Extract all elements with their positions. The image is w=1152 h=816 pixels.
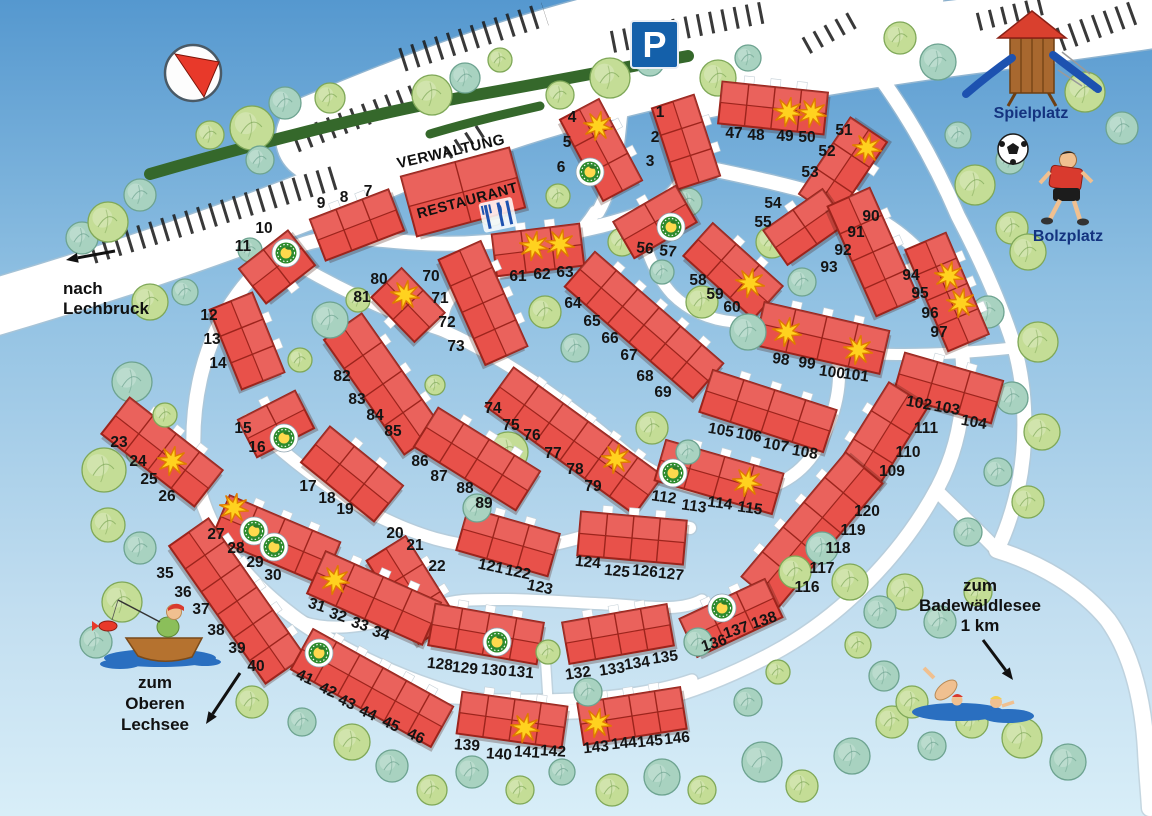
house-number-54: 54 [764, 195, 782, 212]
house-number-93: 93 [820, 259, 838, 276]
house-number-26: 26 [158, 488, 176, 505]
house-number-74: 74 [484, 400, 502, 417]
tree-icon [1106, 112, 1138, 144]
resort-badge-icon [270, 424, 298, 452]
tree-icon [1050, 744, 1086, 780]
tree-icon [456, 756, 488, 788]
house-number-6: 6 [557, 159, 566, 176]
zum-badewaeldlesee-label: Badewäldlesee [919, 596, 1041, 615]
tree-icon [864, 596, 896, 628]
tree-icon [334, 724, 370, 760]
house-number-85: 85 [384, 423, 402, 440]
house-number-114: 114 [706, 493, 734, 513]
tree-icon [82, 448, 126, 492]
tree-icon [196, 121, 224, 149]
tree-icon [730, 314, 766, 350]
house-number-40: 40 [247, 658, 264, 675]
house-number-128: 128 [426, 655, 454, 675]
house-number-18: 18 [318, 490, 336, 507]
house-number-119: 119 [840, 522, 865, 539]
house-number-146: 146 [663, 729, 691, 749]
house-number-69: 69 [654, 384, 672, 401]
house-number-57: 57 [658, 242, 677, 261]
tree-icon [536, 640, 560, 664]
house-number-142: 142 [539, 742, 566, 761]
zum-oberen-lechsee-label: Lechsee [121, 715, 189, 734]
resort-badge-icon [272, 239, 300, 267]
house-number-7: 7 [364, 183, 373, 200]
house-number-120: 120 [854, 503, 880, 520]
house-number-127: 127 [657, 565, 685, 585]
house-number-61: 61 [509, 268, 527, 285]
house-number-29: 29 [246, 554, 264, 571]
house-number-89: 89 [475, 495, 493, 512]
house-number-98: 98 [771, 350, 791, 369]
spielplatz-label: Spielplatz [994, 105, 1069, 122]
house-number-23: 23 [110, 434, 128, 451]
tree-icon [124, 532, 156, 564]
tree-icon [417, 775, 447, 805]
tree-icon [688, 776, 716, 804]
soccer-ball-icon [998, 134, 1028, 165]
tree-icon [984, 458, 1012, 486]
tree-icon [425, 375, 445, 395]
house-number-145: 145 [636, 732, 664, 752]
house-number-62: 62 [533, 266, 550, 283]
resort-site-map: RESTAURANTVERWALTUNG P Spielplatz Bolzpl… [0, 0, 1152, 816]
house-number-64: 64 [564, 295, 582, 312]
house-number-48: 48 [747, 127, 765, 144]
house-number-3: 3 [646, 153, 655, 170]
house-number-9: 9 [317, 195, 326, 212]
tree-icon [636, 412, 668, 444]
house-number-96: 96 [921, 305, 939, 322]
house-number-16: 16 [248, 439, 266, 456]
tree-icon [845, 632, 871, 658]
tree-icon [945, 122, 971, 148]
tree-icon [288, 348, 312, 372]
house-number-133: 133 [598, 659, 626, 679]
house-number-118: 118 [825, 540, 850, 557]
house-number-51: 51 [835, 122, 853, 139]
house-number-78: 78 [566, 461, 584, 478]
tree-icon [742, 742, 782, 782]
house-number-59: 59 [706, 286, 724, 303]
resort-map: RESTAURANTVERWALTUNG P Spielplatz Bolzpl… [0, 0, 1152, 816]
house-number-13: 13 [203, 331, 221, 348]
tree-icon [766, 660, 790, 684]
house-number-25: 25 [140, 471, 158, 488]
house-number-88: 88 [456, 480, 474, 497]
house-number-110: 110 [895, 444, 920, 461]
house-number-35: 35 [156, 565, 174, 582]
house-number-141: 141 [513, 743, 540, 762]
tree-icon [918, 732, 946, 760]
house-number-39: 39 [228, 640, 246, 657]
nach-lechbruck-label: nach [63, 279, 103, 298]
house-number-65: 65 [583, 313, 601, 330]
house-number-71: 71 [431, 290, 449, 307]
house-number-21: 21 [406, 537, 424, 554]
house-number-99: 99 [797, 354, 817, 373]
tree-icon [236, 686, 268, 718]
house-number-91: 91 [847, 224, 865, 241]
house-number-11: 11 [235, 238, 252, 255]
zum-oberen-lechsee-label: Oberen [125, 694, 185, 713]
house-number-20: 20 [386, 525, 403, 542]
house-number-115: 115 [736, 498, 764, 518]
tree-icon [153, 403, 177, 427]
house-number-67: 67 [620, 347, 637, 364]
house-number-76: 76 [523, 427, 541, 444]
house-number-77: 77 [544, 445, 561, 462]
house-number-97: 97 [930, 324, 947, 341]
tree-icon [506, 776, 534, 804]
map-canvas: RESTAURANTVERWALTUNG P Spielplatz Bolzpl… [0, 0, 1152, 816]
tree-icon [788, 268, 816, 296]
house-number-113: 113 [680, 496, 708, 516]
house-number-140: 140 [485, 745, 512, 764]
house-number-72: 72 [438, 314, 455, 331]
tree-icon [590, 58, 630, 98]
tree-icon [561, 334, 589, 362]
house-number-10: 10 [255, 220, 272, 237]
house-number-52: 52 [818, 143, 835, 160]
house-number-75: 75 [502, 417, 520, 434]
house-number-5: 5 [563, 134, 572, 151]
house-number-2: 2 [651, 129, 660, 146]
house-number-83: 83 [348, 391, 366, 408]
house-number-124: 124 [574, 553, 602, 573]
parking-sign: P [631, 21, 678, 68]
house-number-66: 66 [601, 330, 619, 347]
house-number-47: 47 [725, 125, 742, 142]
house-number-14: 14 [209, 355, 227, 372]
tree-icon [450, 63, 480, 93]
house-number-87: 87 [430, 468, 447, 485]
resort-badge-icon [576, 158, 604, 186]
house-number-50: 50 [798, 129, 815, 146]
tree-icon [412, 75, 452, 115]
tree-icon [1018, 322, 1058, 362]
tree-icon [269, 87, 301, 119]
tree-icon [735, 45, 761, 71]
house-number-4: 4 [568, 109, 577, 126]
zum-oberen-lechsee-label: zum [138, 673, 172, 692]
house-number-84: 84 [366, 407, 384, 424]
tree-icon [650, 260, 674, 284]
house-number-144: 144 [610, 734, 638, 754]
house-number-58: 58 [689, 272, 707, 289]
compass-icon [165, 45, 221, 101]
house-number-56: 56 [635, 239, 654, 258]
house-number-101: 101 [842, 365, 870, 385]
house-number-73: 73 [447, 338, 465, 355]
house-number-143: 143 [582, 738, 610, 758]
house-number-135: 135 [651, 647, 679, 667]
svg-text:P: P [642, 24, 666, 65]
tree-icon [124, 179, 156, 211]
house-number-117: 117 [809, 560, 834, 577]
house-number-90: 90 [862, 208, 879, 225]
house-number-130: 130 [480, 661, 508, 681]
resort-badge-icon [483, 628, 511, 656]
house-number-8: 8 [340, 189, 349, 206]
tree-icon [376, 750, 408, 782]
house-number-38: 38 [207, 622, 225, 639]
tree-icon [1002, 718, 1042, 758]
house-number-112: 112 [650, 487, 677, 507]
tree-icon [288, 708, 316, 736]
tree-icon [546, 184, 570, 208]
house-number-1: 1 [656, 104, 665, 121]
house-number-139: 139 [453, 736, 480, 755]
tree-icon [88, 202, 128, 242]
tree-icon [1024, 414, 1060, 450]
house-number-30: 30 [264, 567, 281, 584]
tree-icon [786, 770, 818, 802]
resort-badge-icon [708, 594, 736, 622]
tree-icon [1012, 486, 1044, 518]
house-number-27: 27 [207, 526, 224, 543]
house-number-129: 129 [451, 659, 479, 679]
house-number-132: 132 [564, 663, 592, 683]
tree-icon [172, 279, 198, 305]
house-number-19: 19 [336, 501, 354, 518]
house-number-49: 49 [776, 128, 794, 145]
tree-icon [920, 44, 956, 80]
tree-icon [832, 564, 868, 600]
house-number-63: 63 [556, 264, 574, 281]
house-number-94: 94 [902, 267, 920, 284]
house-number-53: 53 [801, 164, 819, 181]
tree-icon [246, 146, 274, 174]
house-number-125: 125 [603, 562, 631, 582]
house-number-36: 36 [174, 584, 192, 601]
house-number-17: 17 [299, 478, 316, 495]
house-number-81: 81 [353, 289, 371, 306]
house-number-68: 68 [636, 368, 654, 385]
tree-icon [955, 165, 995, 205]
tree-icon [312, 302, 348, 338]
house-number-116: 116 [794, 579, 819, 596]
house-number-109: 109 [879, 463, 905, 480]
house-number-28: 28 [227, 540, 245, 557]
tree-icon [91, 508, 125, 542]
house-number-134: 134 [623, 653, 651, 673]
tree-icon [112, 362, 152, 402]
nach-lechbruck-label: Lechbruck [63, 299, 150, 318]
zum-badewaeldlesee-label: 1 km [961, 616, 1000, 635]
house-number-111: 111 [914, 420, 939, 437]
tree-icon [884, 22, 916, 54]
tree-icon [574, 678, 602, 706]
tree-icon [869, 661, 899, 691]
house-number-70: 70 [422, 268, 439, 285]
resort-badge-icon [657, 213, 685, 241]
tree-icon [954, 518, 982, 546]
resort-badge-icon [305, 639, 333, 667]
tree-icon [529, 296, 561, 328]
house-number-80: 80 [370, 271, 387, 288]
house-number-60: 60 [723, 299, 740, 316]
house-number-24: 24 [129, 453, 147, 470]
tree-icon [734, 688, 762, 716]
house-number-131: 131 [507, 663, 535, 683]
tree-icon [546, 81, 574, 109]
house-number-79: 79 [584, 478, 602, 495]
tree-icon [230, 106, 274, 150]
house-number-12: 12 [200, 307, 217, 324]
house-number-82: 82 [333, 368, 350, 385]
resort-badge-icon [659, 459, 687, 487]
house-number-15: 15 [234, 420, 252, 437]
house-number-55: 55 [754, 214, 772, 231]
tree-icon [488, 48, 512, 72]
house-number-37: 37 [192, 601, 209, 618]
house-number-95: 95 [911, 285, 929, 302]
bolzplatz-label: Bolzplatz [1033, 228, 1103, 245]
zum-badewaeldlesee-label: zum [963, 576, 997, 595]
house-number-22: 22 [428, 558, 445, 575]
house-number-126: 126 [631, 562, 659, 582]
tree-icon [315, 83, 345, 113]
resort-badge-icon [260, 533, 288, 561]
tree-icon [644, 759, 680, 795]
house-number-86: 86 [411, 453, 429, 470]
house-number-92: 92 [834, 242, 851, 259]
tree-icon [834, 738, 870, 774]
tree-icon [596, 774, 628, 806]
tree-icon [549, 759, 575, 785]
